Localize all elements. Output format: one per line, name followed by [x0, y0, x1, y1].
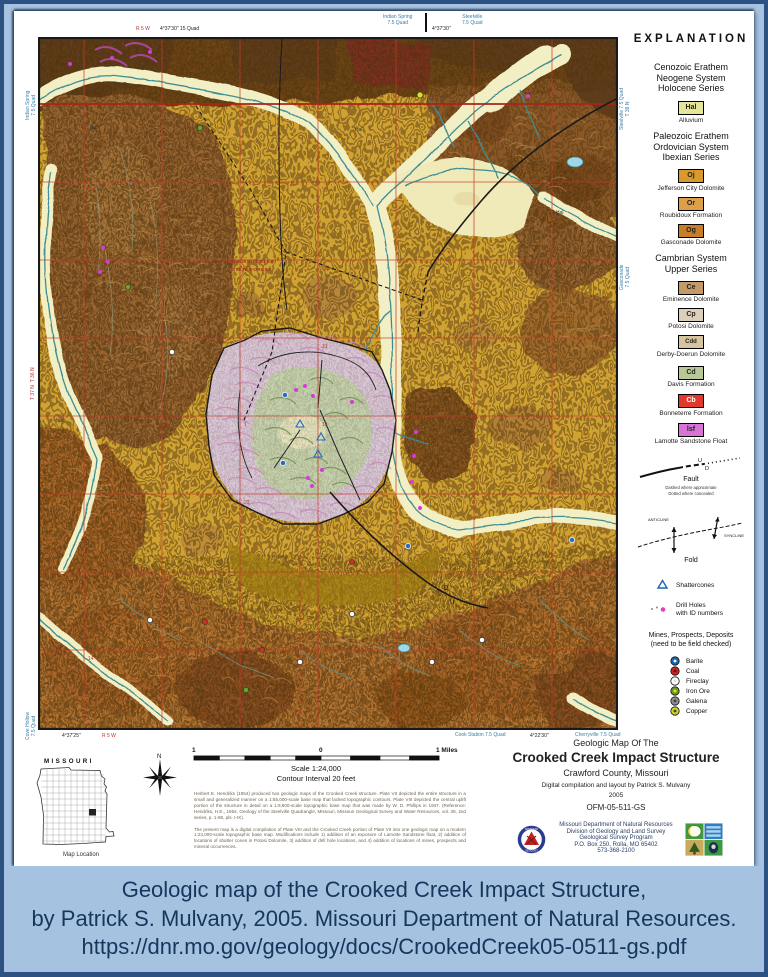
svg-text:Dotted where concealed: Dotted where concealed — [668, 491, 714, 496]
svg-text:7: 7 — [556, 422, 559, 428]
svg-text:Iron Ore: Iron Ore — [686, 688, 710, 695]
svg-text:ANTICLINE: ANTICLINE — [648, 517, 669, 522]
svg-text:D: D — [705, 466, 709, 472]
svg-text:(need to be field checked): (need to be field checked) — [651, 641, 732, 648]
svg-text:18: 18 — [400, 110, 406, 116]
svg-text:Fault: Fault — [683, 476, 699, 483]
svg-text:1: 1 — [192, 747, 196, 754]
svg-text:SYNCLINE: SYNCLINE — [724, 533, 744, 538]
svg-text:25: 25 — [166, 266, 172, 272]
svg-text:0: 0 — [319, 747, 323, 754]
svg-text:2: 2 — [322, 578, 325, 584]
svg-text:Contour Interval 20 feet: Contour Interval 20 feet — [277, 774, 356, 783]
svg-text:13: 13 — [244, 110, 250, 116]
svg-text:Mines, Prospects, Deposits: Mines, Prospects, Deposits — [649, 632, 734, 639]
svg-text:Shattercones: Shattercones — [676, 582, 715, 589]
svg-text:6: 6 — [166, 422, 169, 428]
svg-text:1 Miles: 1 Miles — [436, 747, 458, 754]
svg-text:Hal: Hal — [355, 127, 363, 133]
svg-text:Hal: Hal — [90, 125, 98, 131]
svg-text:N: N — [157, 754, 161, 760]
svg-text:Coal: Coal — [686, 668, 700, 675]
svg-text:U: U — [698, 458, 702, 464]
svg-text:Scale 1:24,000: Scale 1:24,000 — [291, 764, 341, 773]
svg-text:36: 36 — [322, 266, 328, 272]
svg-text:STATE FOREST: STATE FOREST — [232, 267, 271, 272]
svg-text:Dashed where approximate: Dashed where approximate — [665, 485, 717, 490]
svg-text:1: 1 — [244, 422, 247, 428]
svg-text:D: D — [444, 586, 449, 592]
svg-text:Fireclay: Fireclay — [686, 678, 710, 685]
svg-text:24: 24 — [88, 188, 94, 194]
svg-text:23: 23 — [244, 500, 250, 506]
svg-text:11: 11 — [556, 578, 561, 584]
svg-text:U: U — [450, 600, 454, 606]
svg-text:Fold: Fold — [684, 557, 698, 564]
svg-text:with ID numbers: with ID numbers — [675, 610, 724, 617]
svg-text:12: 12 — [322, 422, 328, 428]
svg-text:19: 19 — [322, 188, 328, 194]
svg-text:MISSOURI: MISSOURI — [525, 827, 538, 831]
svg-text:MISSOURI: MISSOURI — [44, 758, 94, 765]
svg-text:31: 31 — [322, 344, 328, 350]
svg-text:35: 35 — [166, 578, 172, 584]
svg-text:GEOLOGY: GEOLOGY — [525, 848, 538, 852]
svg-text:Hal: Hal — [585, 690, 593, 696]
svg-text:26: 26 — [478, 500, 484, 506]
svg-text:Hal: Hal — [455, 428, 463, 434]
svg-text:Barite: Barite — [686, 658, 703, 665]
svg-text:CROOKED CREEK: CROOKED CREEK — [228, 259, 274, 264]
svg-text:Hal: Hal — [556, 210, 564, 216]
svg-text:Map Location: Map Location — [63, 852, 99, 858]
svg-text:Hal: Hal — [56, 418, 64, 424]
svg-text:Copper: Copper — [686, 708, 708, 715]
svg-text:14: 14 — [88, 656, 94, 662]
svg-text:Galena: Galena — [686, 698, 707, 705]
svg-text:Drill Holes: Drill Holes — [676, 602, 706, 609]
